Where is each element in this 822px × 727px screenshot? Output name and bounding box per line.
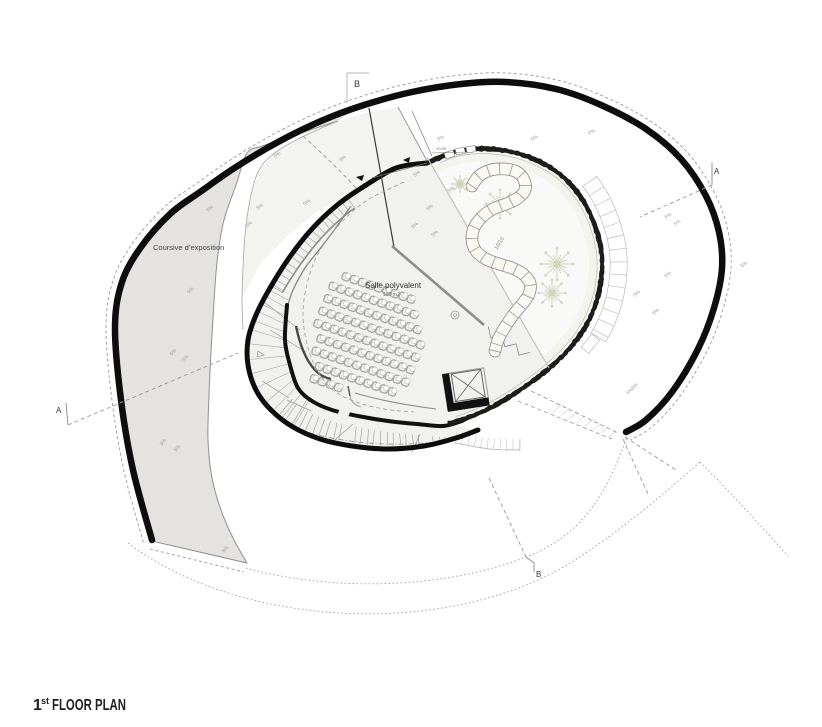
svg-text:B: B (354, 79, 360, 89)
svg-text:A: A (56, 406, 62, 415)
svg-text:5%: 5% (663, 270, 673, 280)
svg-text:Coursive d’exposition: Coursive d’exposition (153, 243, 224, 252)
svg-text:5%: 5% (664, 211, 674, 220)
svg-text:A: A (714, 167, 720, 176)
svg-text:180 m2: 180 m2 (383, 292, 400, 298)
svg-text:5%: 5% (651, 307, 661, 317)
svg-text:5%: 5% (740, 260, 750, 270)
svg-text:5%: 5% (673, 218, 683, 227)
svg-text:Salle polyvalent: Salle polyvalent (365, 281, 422, 290)
svg-text:5%: 5% (632, 289, 642, 299)
svg-text:5%: 5% (436, 134, 446, 143)
svg-text:B: B (536, 570, 541, 579)
svg-text:5%: 5% (587, 128, 597, 137)
svg-text:st: st (41, 696, 49, 706)
svg-text:+0.00: +0.00 (436, 146, 447, 151)
svg-text:5%: 5% (530, 134, 540, 143)
svg-text:FLOOR PLAN: FLOOR PLAN (52, 697, 126, 714)
